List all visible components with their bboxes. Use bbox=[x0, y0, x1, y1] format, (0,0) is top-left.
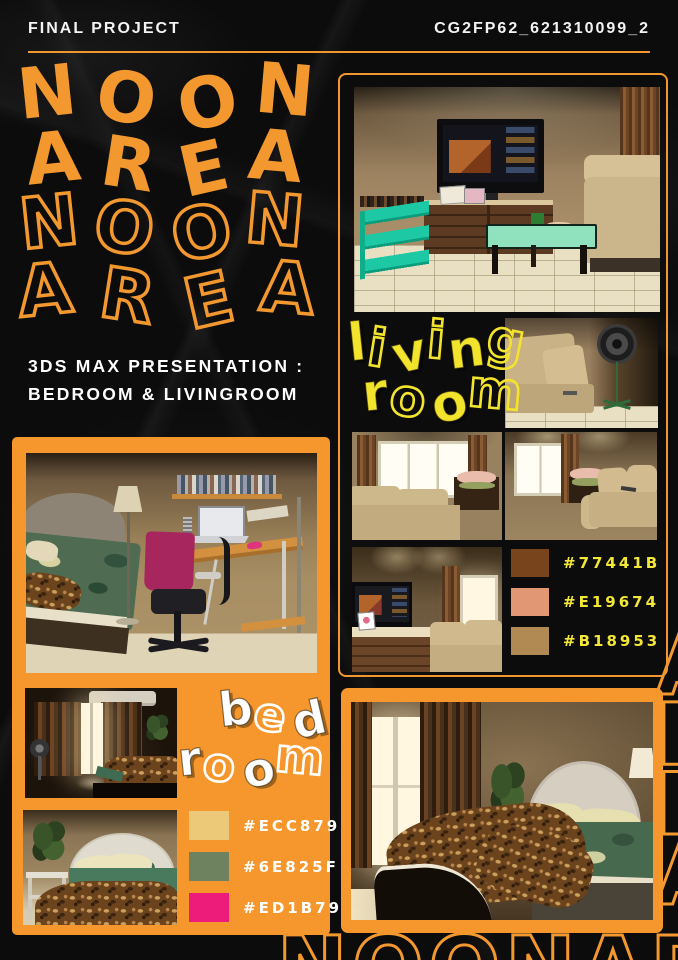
render-living-main bbox=[354, 87, 660, 312]
wall-shelf bbox=[172, 494, 283, 500]
blanket bbox=[35, 881, 177, 925]
palette-row: #6E825F bbox=[189, 852, 342, 881]
title-area-outline: AREA bbox=[18, 260, 314, 326]
palette-row: #ECC879 bbox=[189, 811, 342, 840]
sofa-seat bbox=[352, 505, 460, 540]
render-bedroom-dark bbox=[25, 688, 177, 798]
render-sofa-fan bbox=[505, 318, 658, 428]
papers bbox=[247, 505, 289, 522]
photo-frame bbox=[439, 185, 467, 205]
poster: NOONAREA A R E A FINAL PROJECT CG2FP62_6… bbox=[0, 0, 678, 960]
palette-row: #ED1B79 bbox=[189, 893, 342, 922]
teal-shelf bbox=[360, 201, 429, 279]
living-color-palette: #77441B #E19674 #B18953 bbox=[511, 549, 660, 666]
bed-base bbox=[93, 783, 177, 798]
color-swatch bbox=[511, 549, 549, 577]
drawer-unit bbox=[352, 637, 430, 672]
poster-title: NOON AREA NOON AREA bbox=[16, 62, 322, 326]
color-hex-label: #6E825F bbox=[243, 858, 339, 876]
table-leg bbox=[531, 245, 536, 268]
photo-frame bbox=[357, 611, 376, 631]
header-divider bbox=[28, 51, 650, 53]
palette-row: #E19674 bbox=[511, 588, 660, 616]
render-window-sofa-2 bbox=[505, 432, 657, 540]
plant bbox=[29, 817, 69, 865]
lamp-shade bbox=[113, 486, 142, 512]
bedroom-color-palette: #ECC879 #6E825F #ED1B79 bbox=[189, 811, 342, 934]
render-tv-corner bbox=[352, 547, 502, 672]
label-room: room bbox=[362, 367, 525, 419]
table-leg bbox=[492, 245, 498, 274]
living-room-section: living room bbox=[338, 73, 668, 677]
subtitle-line2: BEDROOM & LIVINGROOM bbox=[28, 380, 304, 408]
curtain bbox=[351, 702, 372, 868]
door-mullion bbox=[90, 703, 93, 773]
render-window-sofa-1 bbox=[352, 432, 502, 540]
fan-pole bbox=[616, 362, 619, 404]
sofa-seat bbox=[589, 492, 657, 527]
color-hex-label: #E19674 bbox=[563, 593, 659, 611]
lamp-shade bbox=[629, 748, 653, 779]
label-bed: bed bbox=[178, 685, 324, 735]
desk-tower-pole bbox=[297, 497, 301, 633]
photo-frame-small bbox=[464, 188, 484, 204]
render-bedroom-main bbox=[26, 453, 317, 673]
chair-post bbox=[174, 611, 180, 642]
chair-armrest bbox=[195, 572, 221, 579]
palette-row: #B18953 bbox=[511, 627, 660, 655]
color-hex-label: #ECC879 bbox=[243, 817, 340, 835]
sofa bbox=[584, 177, 661, 263]
plant bbox=[144, 712, 171, 743]
pillow-green bbox=[459, 482, 495, 490]
course-code: CG2FP62_621310099_2 bbox=[434, 20, 650, 38]
palette-row: #77441B bbox=[511, 549, 660, 577]
label-room: room bbox=[178, 735, 324, 785]
remote bbox=[563, 391, 577, 395]
table-leg bbox=[580, 245, 586, 274]
fan-head bbox=[597, 324, 637, 365]
color-swatch bbox=[189, 852, 229, 881]
color-hex-label: #B18953 bbox=[563, 632, 660, 650]
lamp-base bbox=[116, 618, 139, 625]
living-room-label: living room bbox=[348, 317, 525, 419]
render-bedroom-big bbox=[351, 702, 653, 920]
chair-seat bbox=[151, 589, 206, 613]
books bbox=[177, 475, 276, 495]
color-swatch bbox=[189, 893, 229, 922]
subtitle: 3DS MAX PRESENTATION : BEDROOM & LIVINGR… bbox=[28, 352, 304, 408]
render-bedroom-bed bbox=[23, 810, 177, 925]
color-swatch bbox=[511, 588, 549, 616]
sofa-base bbox=[590, 258, 660, 272]
tv-stand bbox=[486, 193, 498, 200]
bedroom-label: bed room bbox=[178, 685, 324, 785]
fan-pole bbox=[38, 756, 41, 780]
sofa-seat bbox=[430, 645, 502, 673]
bedroom-big-frame bbox=[341, 688, 663, 933]
bedroom-panel: bed room #ECC879 #6E825F bbox=[12, 437, 330, 935]
subtitle-line1: 3DS MAX PRESENTATION : bbox=[28, 352, 304, 380]
color-hex-label: #77441B bbox=[563, 554, 660, 572]
tv-screen bbox=[443, 125, 538, 181]
window bbox=[514, 443, 567, 497]
color-hex-label: #ED1B79 bbox=[243, 899, 342, 917]
lamp-pole bbox=[127, 512, 130, 620]
desk-leg bbox=[282, 541, 285, 629]
project-label: FINAL PROJECT bbox=[28, 20, 181, 38]
color-swatch bbox=[189, 811, 229, 840]
color-swatch bbox=[511, 627, 549, 655]
